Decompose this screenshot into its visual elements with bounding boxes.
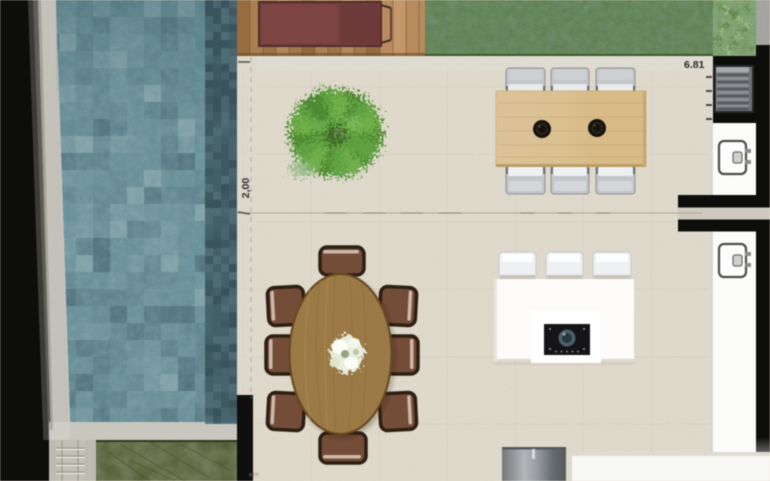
svg-text:2,00: 2,00 [240, 178, 252, 199]
svg-text:6.81: 6.81 [684, 59, 705, 71]
svg-text:a.co: a.co [249, 472, 259, 478]
